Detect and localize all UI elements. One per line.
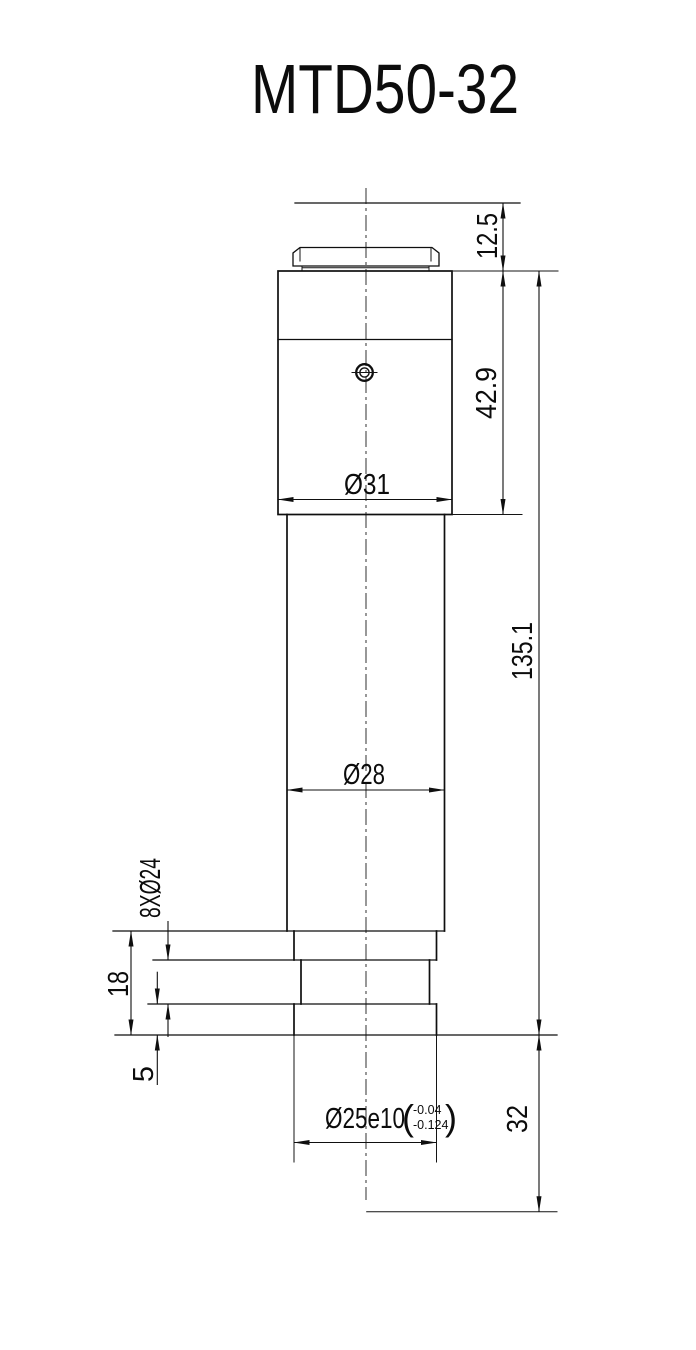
dimension-texts: 12.5 42.9 Ø31 Ø28 135.1 8XØ24 18 5 Ø25e1… bbox=[103, 213, 539, 1138]
dim-flange-height: 18 bbox=[103, 971, 135, 997]
spigot-tol-paren-close: ) bbox=[445, 1097, 457, 1138]
dim-cap-offset: 12.5 bbox=[472, 213, 504, 259]
dim-tube-dia: Ø28 bbox=[343, 759, 385, 791]
dim-body-length: 135.1 bbox=[507, 622, 539, 680]
drawing-title: MTD50-32 bbox=[251, 50, 519, 128]
part-outline bbox=[113, 203, 557, 1212]
dim-spigot-tol-lower: -0.124 bbox=[413, 1118, 448, 1132]
dim-head-height: 42.9 bbox=[471, 367, 503, 419]
dim-spigot-tol-upper: -0.04 bbox=[413, 1103, 442, 1117]
dim-head-dia: Ø31 bbox=[344, 469, 390, 501]
dim-flange-callout: 8XØ24 bbox=[135, 858, 167, 918]
extension-lines bbox=[452, 271, 558, 515]
dim-spigot-dia: Ø25e10 bbox=[325, 1103, 405, 1135]
technical-drawing: MTD50-32 bbox=[0, 0, 696, 1350]
dimension-lines bbox=[131, 203, 539, 1212]
dim-insert-length: 32 bbox=[502, 1105, 534, 1133]
dim-base-height: 5 bbox=[128, 1066, 160, 1082]
set-screw-hole bbox=[352, 364, 377, 381]
drawing-page: MTD50-32 bbox=[0, 0, 696, 1350]
